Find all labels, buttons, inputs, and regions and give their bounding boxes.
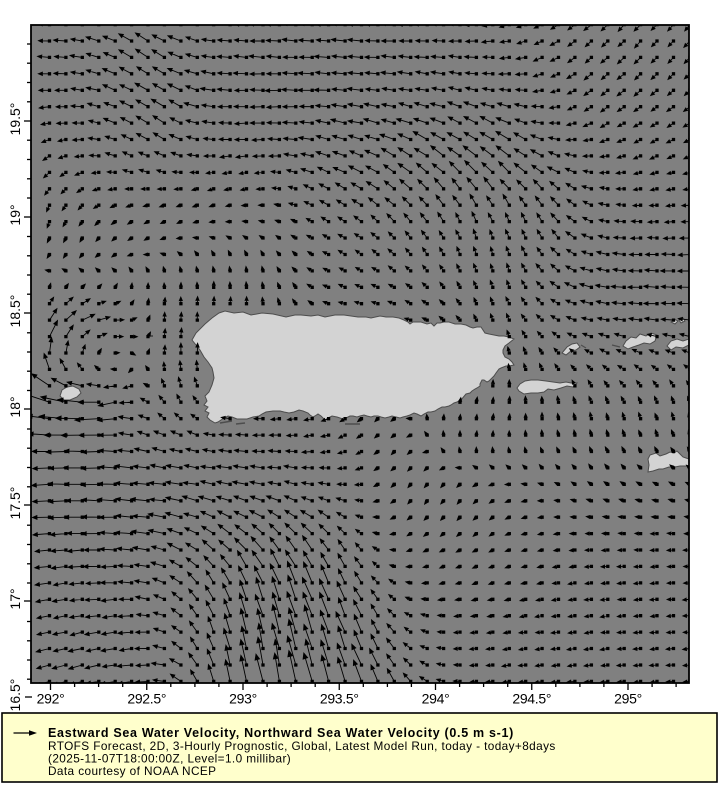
svg-text:294.5°: 294.5° <box>512 691 551 707</box>
svg-text:19°: 19° <box>7 204 23 225</box>
svg-text:292.5°: 292.5° <box>127 691 166 707</box>
svg-text:18°: 18° <box>7 396 23 417</box>
svg-text:295°: 295° <box>614 691 642 707</box>
svg-text:17.5°: 17.5° <box>7 487 23 520</box>
svg-text:19.5°: 19.5° <box>7 103 23 136</box>
svg-text:292°: 292° <box>37 691 65 707</box>
svg-text:Eastward Sea Water Velocity, N: Eastward Sea Water Velocity, Northward S… <box>48 726 514 740</box>
svg-text:18.5°: 18.5° <box>7 295 23 328</box>
svg-text:Data courtesy of NOAA NCEP: Data courtesy of NOAA NCEP <box>48 764 216 778</box>
svg-text:293°: 293° <box>229 691 257 707</box>
svg-text:16.5°: 16.5° <box>7 679 23 712</box>
svg-text:17°: 17° <box>7 588 23 609</box>
svg-text:293.5°: 293.5° <box>320 691 359 707</box>
svg-text:294°: 294° <box>422 691 450 707</box>
